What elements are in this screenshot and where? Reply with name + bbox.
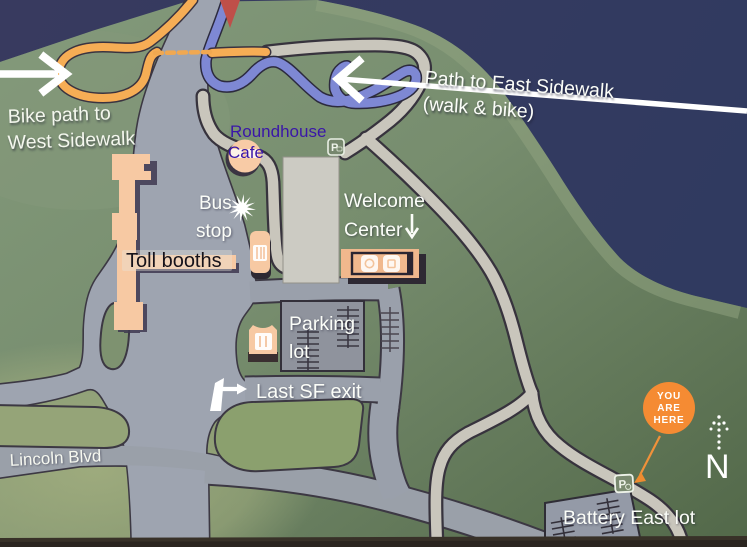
svg-text:N: N [705, 448, 730, 486]
svg-text:Cafe: Cafe [228, 143, 264, 162]
svg-text:Roundhouse: Roundhouse [230, 122, 326, 141]
svg-text:ARE: ARE [657, 403, 681, 414]
svg-text:West Sidewalk: West Sidewalk [7, 128, 135, 154]
svg-text:Bike path to: Bike path to [7, 102, 111, 128]
svg-text:YOU: YOU [657, 391, 681, 402]
svg-text:Parking: Parking [289, 313, 355, 335]
svg-text:Toll booths: Toll booths [126, 250, 222, 272]
svg-text:lot: lot [289, 341, 310, 363]
svg-text:stop: stop [196, 221, 232, 242]
svg-text:Welcome: Welcome [344, 190, 425, 212]
svg-text:Battery East lot: Battery East lot [563, 507, 696, 529]
svg-text:HERE: HERE [654, 415, 685, 426]
svg-text:Bus: Bus [199, 193, 232, 214]
svg-text:Last SF exit: Last SF exit [256, 381, 362, 403]
svg-text:Center: Center [344, 219, 403, 241]
